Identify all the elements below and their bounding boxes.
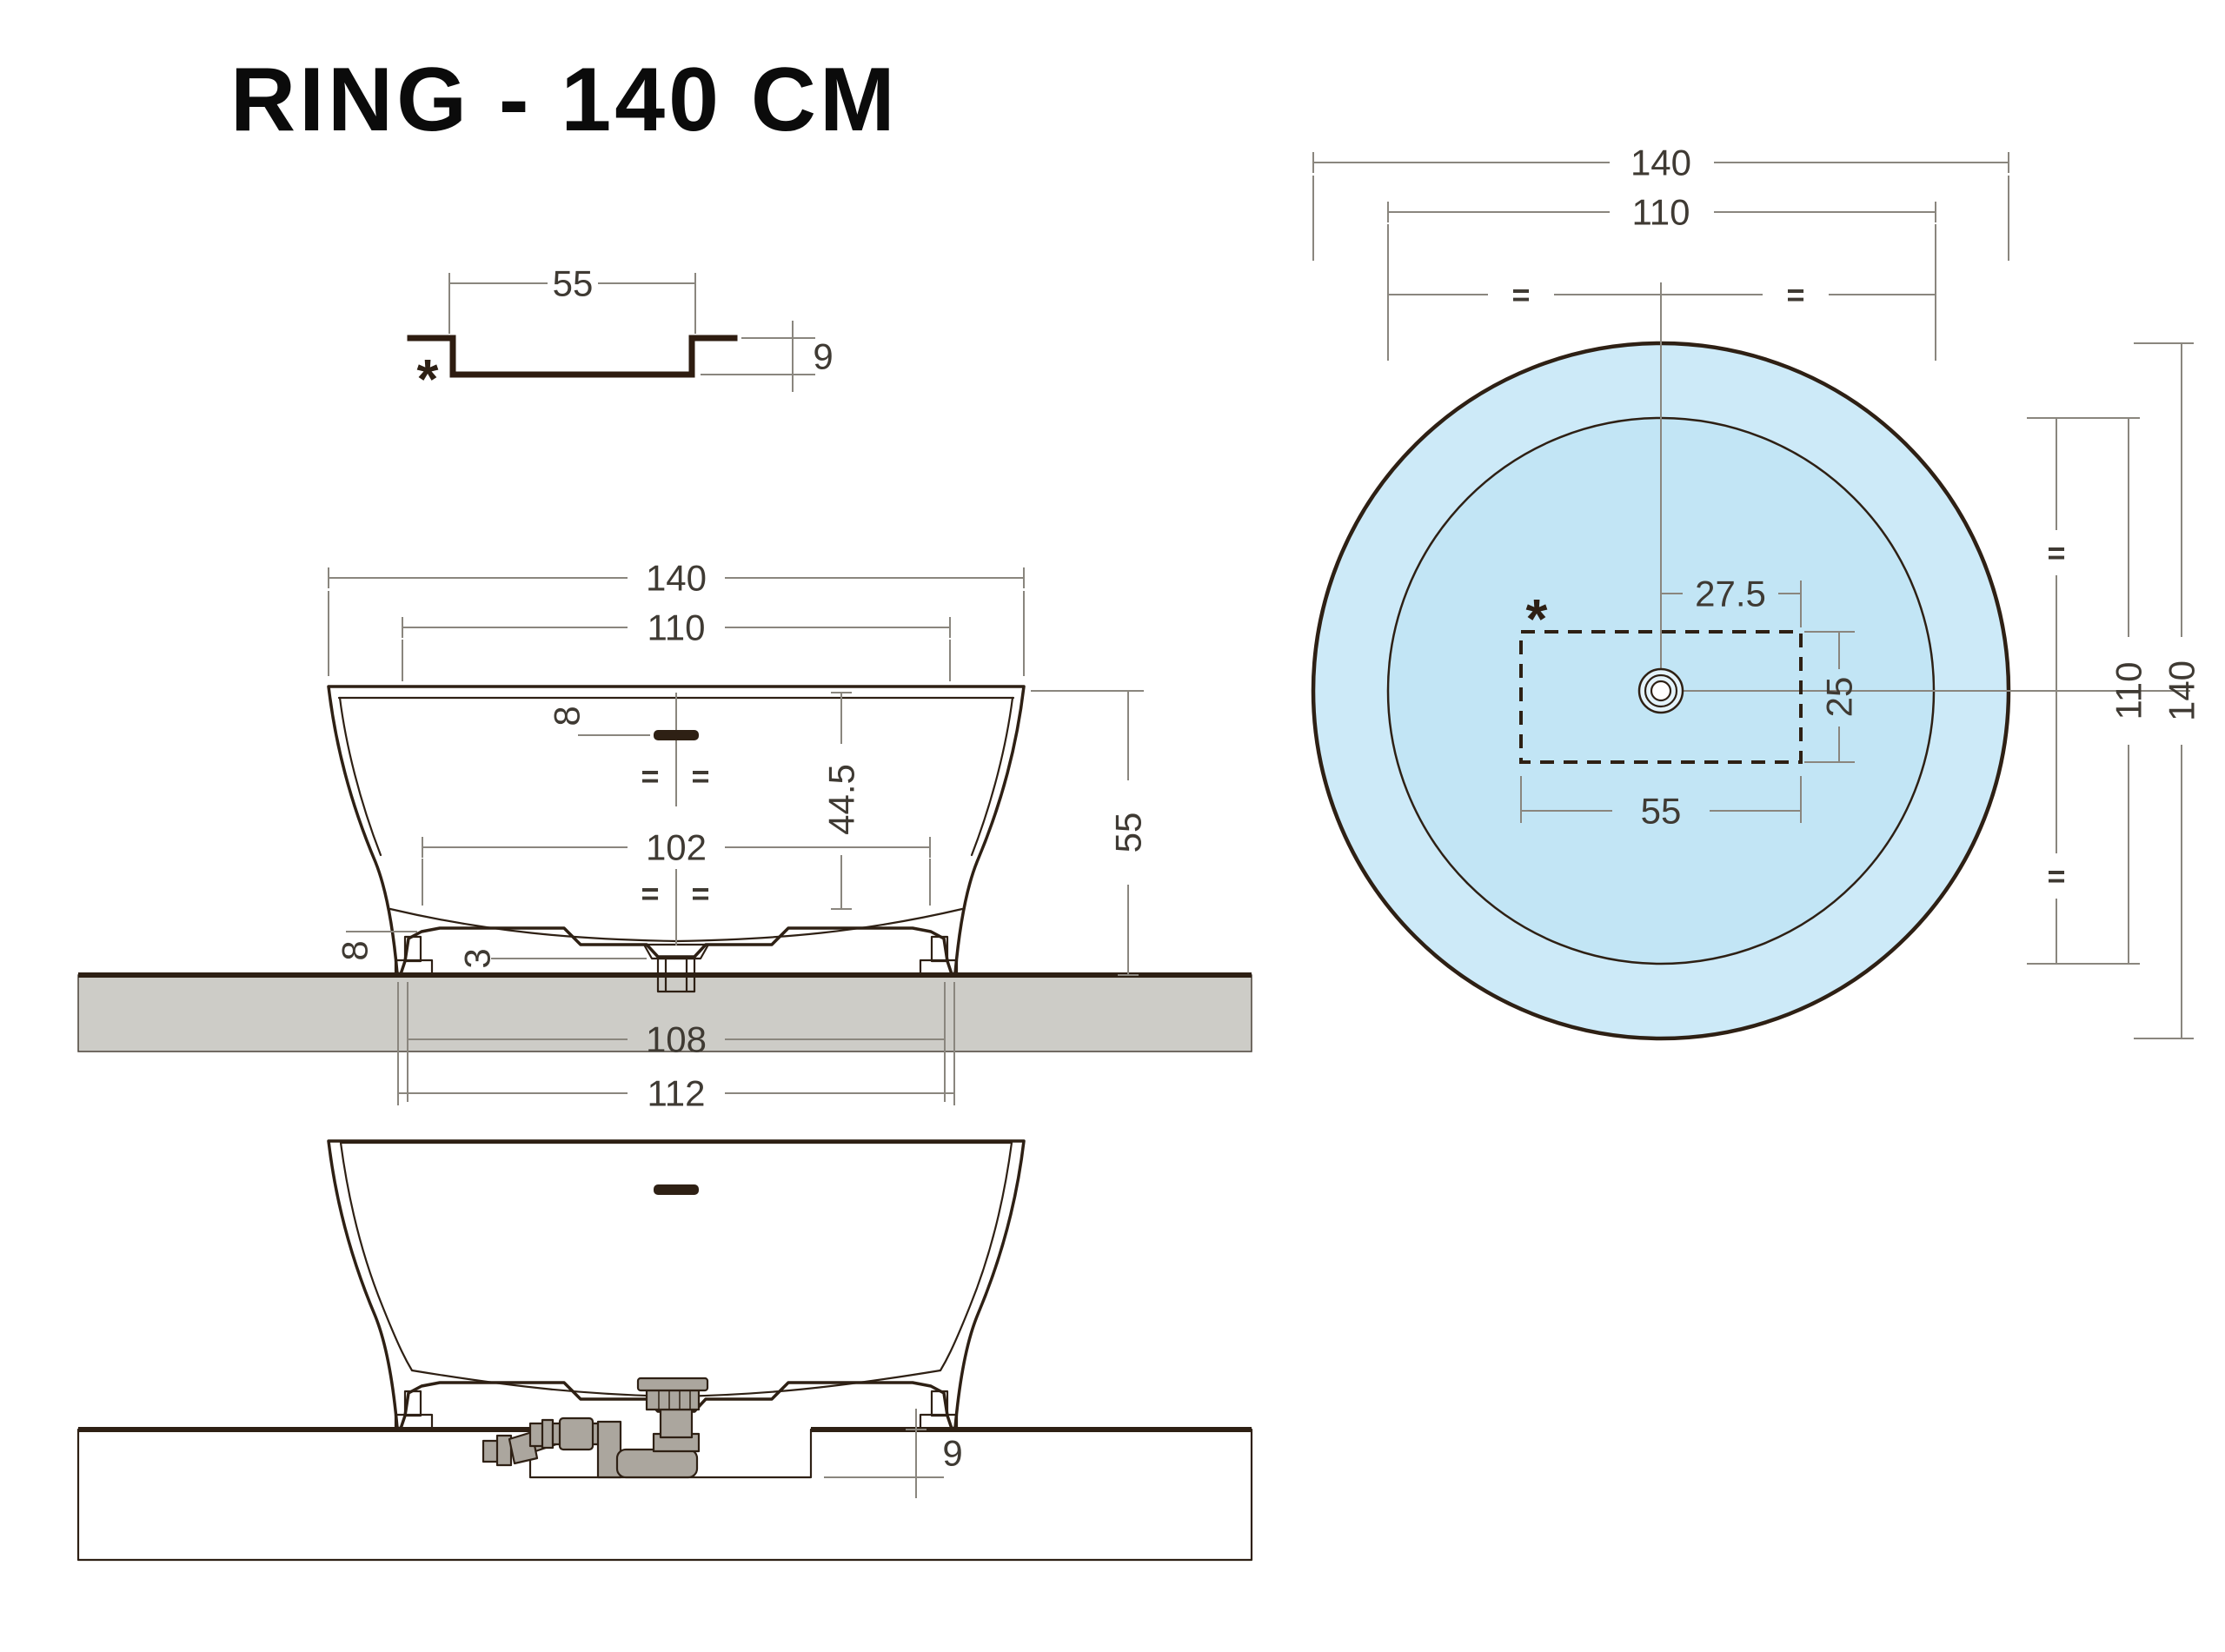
drain-nut <box>647 1390 699 1410</box>
dim-front-plinth-label: 8 <box>335 940 375 960</box>
front-elevation-view: 140 110 8 = = 44.5 102 = = 3 8 55 108 11… <box>78 558 1252 1114</box>
plan-equal-mark-bottom: = <box>2047 859 2065 894</box>
detail-asterisk-note: * <box>417 348 439 410</box>
dim-plan-rim-h-label: 110 <box>2109 662 2149 720</box>
dim-front-depth-label: 44.5 <box>821 764 862 835</box>
detail-depth-label: 9 <box>813 336 833 377</box>
installation-section-view: 9 <box>78 1141 1252 1560</box>
section-tub-interior <box>341 1143 1012 1397</box>
detail-depth-dimension-lines <box>701 321 815 392</box>
dim-section-recess-label: 9 <box>942 1433 962 1474</box>
plan-asterisk-note: * <box>1526 587 1548 650</box>
plan-drain-inner-ring <box>1651 681 1670 700</box>
dim-front-rim-label: 110 <box>648 607 706 648</box>
dim-section-recess-lines <box>824 1409 944 1498</box>
dim-plan-rim-w-label: 110 <box>1632 192 1690 233</box>
dim-plan-equal-lines <box>1388 282 1936 307</box>
plan-drain <box>1639 669 1683 713</box>
dim-front-drain-gap-label: 3 <box>457 948 498 968</box>
front-overflow-slot <box>654 730 699 740</box>
trap-bottom <box>617 1450 697 1477</box>
front-equal-mark-4: = <box>691 876 709 912</box>
recess-channel-profile <box>410 338 734 375</box>
dim-plan-recess-h-label: 25 <box>1819 677 1860 718</box>
plan-equal-mark-top: = <box>2047 535 2065 571</box>
front-equal-mark-2: = <box>691 759 709 794</box>
dim-front-overflow-label: 8 <box>547 706 588 726</box>
technical-drawing-sheet: RING - 140 CM 55 9 * <box>0 0 2225 1652</box>
recess-detail-drawing: 55 9 * <box>410 263 834 411</box>
page-title: RING - 140 CM <box>230 50 899 150</box>
dim-front-bottom-width-label: 102 <box>646 827 707 868</box>
dim-front-height-label: 55 <box>1108 813 1149 853</box>
drain-tailpipe <box>661 1410 692 1437</box>
front-equal-mark-3: = <box>641 876 659 912</box>
dim-front-base-span-label: 112 <box>648 1073 706 1114</box>
pipe-ring-2 <box>542 1420 553 1448</box>
plan-equal-mark-left: = <box>1511 277 1530 313</box>
detail-width-label: 55 <box>553 263 594 304</box>
dim-plan-overall-w-label: 140 <box>1631 143 1691 183</box>
dim-plan-recess-w-label: 55 <box>1641 791 1682 832</box>
dim-plan-drain-offset-label: 27.5 <box>1695 574 1766 614</box>
plan-view: * 140 110 = = 27.5 25 55 = = 110 140 <box>1313 143 2202 1039</box>
dim-front-feet-span-label: 108 <box>646 1019 707 1060</box>
dim-plan-overall-h-label: 140 <box>2162 660 2202 721</box>
front-equal-mark-1: = <box>641 759 659 794</box>
dim-front-overall-label: 140 <box>646 558 707 599</box>
dim-front-overflow-lines <box>578 693 676 806</box>
section-overflow-slot <box>654 1184 699 1195</box>
pipe-compression-nut <box>560 1418 593 1450</box>
drain-flange <box>638 1378 707 1390</box>
plan-equal-mark-right: = <box>1786 277 1804 313</box>
